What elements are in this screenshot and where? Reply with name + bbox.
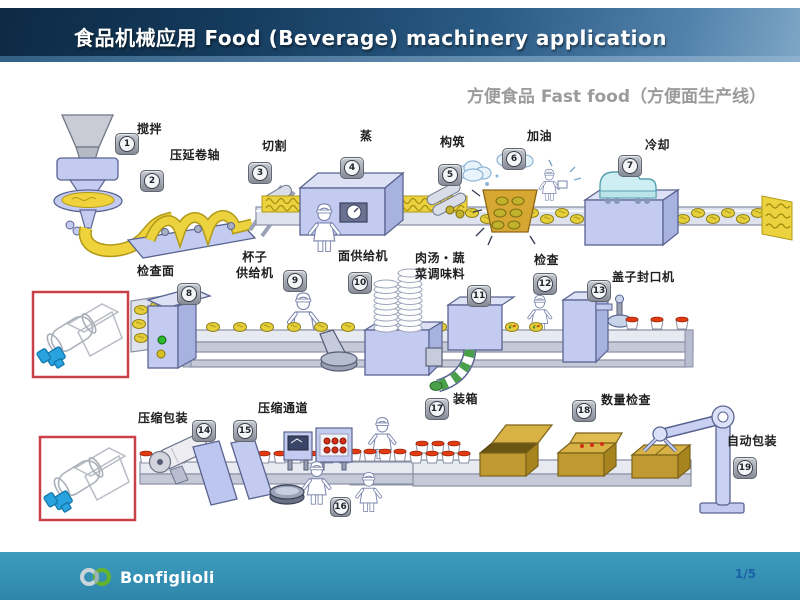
gearmotor-highlight-box-1: [33, 292, 128, 377]
step-label-6: 加油: [527, 128, 552, 144]
production-line-illustration: [0, 0, 800, 600]
step-label-12: 检查: [534, 252, 559, 268]
step-label-2: 压延卷轴: [170, 147, 220, 163]
fry-cook-figure: [540, 169, 559, 200]
step-badge-10: 10: [348, 272, 372, 294]
step-label-3: 切割: [262, 138, 287, 154]
slide: 食品机械应用 Food (Beverage) machinery applica…: [0, 0, 800, 600]
step-badge-8: 8: [177, 283, 201, 305]
step-badge-5: 5: [438, 164, 462, 186]
step-badge-19: 19: [733, 457, 757, 479]
step-label-1: 搅拌: [137, 121, 162, 137]
step-label-13: 盖子封口机: [612, 269, 675, 285]
step-badge-16: 16: [330, 497, 351, 517]
step-label-17: 装箱: [453, 391, 478, 407]
mixing-tub: [270, 485, 304, 504]
sealed-cups-row2: [626, 317, 688, 329]
footer-bar: Bonfiglioli 1/5: [0, 552, 800, 600]
step-label-14: 压缩包装: [138, 410, 188, 426]
step-label-18: 数量检查: [601, 392, 651, 408]
step-badge-4: 4: [340, 157, 364, 179]
company-logo: Bonfiglioli: [78, 565, 215, 589]
gearmotor-highlight-box-2: [40, 437, 135, 520]
step-badge-11: 11: [467, 285, 491, 307]
step-badge-9: 9: [283, 270, 307, 292]
step-badge-1: 1: [115, 133, 139, 155]
step-label-11: 肉汤・蔬 菜调味料: [415, 250, 465, 282]
splash-lines: [549, 160, 581, 180]
step-badge-14: 14: [192, 420, 216, 442]
cooling-unit: [585, 172, 678, 245]
step-badge-3: 3: [248, 162, 272, 184]
logo-text: Bonfiglioli: [120, 568, 215, 587]
step-badge-15: 15: [233, 420, 257, 442]
step-badge-18: 18: [572, 400, 596, 422]
page-number: 1/5: [735, 567, 756, 581]
step-label-19: 自动包装: [727, 433, 777, 449]
step-label-15: 压缩通道: [258, 400, 308, 416]
step-badge-2: 2: [140, 170, 164, 192]
step-badge-6: 6: [502, 148, 526, 170]
step-label-4: 蒸: [360, 128, 373, 144]
step-label-10: 面供给机: [338, 248, 388, 264]
carton-box-closed: [632, 445, 690, 478]
step-label-8: 检查面: [137, 263, 175, 279]
step-label-5: 构筑: [440, 134, 465, 150]
step-badge-7: 7: [618, 155, 642, 177]
step-label-7: 冷却: [645, 137, 670, 153]
carton-box-closing: [558, 433, 622, 476]
step-badge-13: 13: [587, 280, 611, 302]
bonfiglioli-logo-icon: [78, 565, 114, 589]
step-badge-12: 12: [533, 273, 557, 295]
exit-noodle-band: [762, 196, 792, 240]
step-badge-17: 17: [425, 398, 449, 420]
step-label-9: 杯子 供给机: [236, 249, 274, 281]
noodle-block-in-hand: [558, 181, 567, 188]
